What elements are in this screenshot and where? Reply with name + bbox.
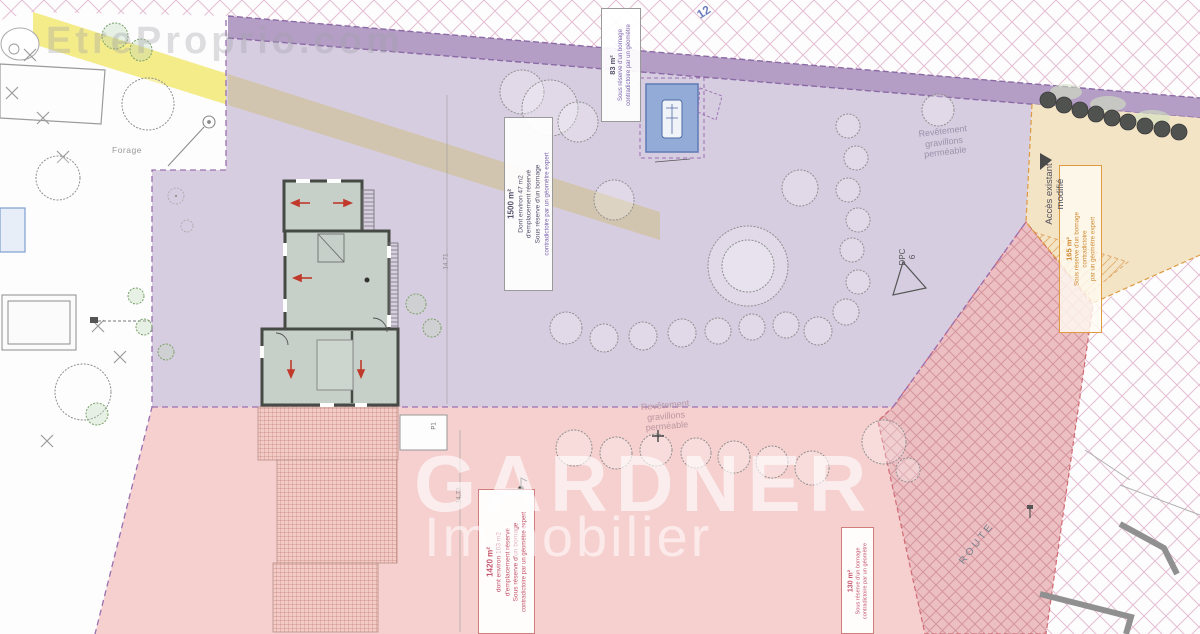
dimension-label-1: 14,71: [443, 253, 450, 269]
area-label-road: 130 m² Sous réserve d'un bornagecontradi…: [841, 527, 874, 634]
area-main-note: contradictoire par un géomètre expert: [543, 119, 551, 289]
area-road-lines: Sous réserve d'un bornagecontradictoire …: [855, 529, 870, 632]
area-top-lines: Sous réserve d'un bornagecontradictoire …: [618, 10, 634, 120]
forage-label: Forage: [112, 145, 142, 155]
area-top-value: 83 m²: [608, 10, 618, 120]
access-modified-label: Accès existantmodifié: [1036, 120, 1074, 268]
area-main-lines: Dont environ 47 m2d'emplacement réservéS…: [517, 119, 543, 289]
pool-plate-label: P1: [432, 422, 438, 429]
area-main-value: 1500 m²: [506, 119, 516, 289]
area-road-value: 130 m²: [846, 529, 855, 632]
dpc-label: DPC6: [897, 236, 925, 278]
site-plan: 1500 m² Dont environ 47 m2d'emplacement …: [0, 0, 1200, 634]
area-access-lines: Sous réserve d'un bornagecontradictoirep…: [1073, 167, 1097, 331]
terrace-decks: [258, 407, 398, 632]
site-watermark: EtreProprio.com: [46, 20, 404, 63]
area-label-top: 83 m² Sous réserve d'un bornagecontradic…: [601, 8, 641, 122]
area-label-main: 1500 m² Dont environ 47 m2d'emplacement …: [504, 117, 553, 291]
brand-watermark-sub: Immobilier: [424, 504, 712, 569]
